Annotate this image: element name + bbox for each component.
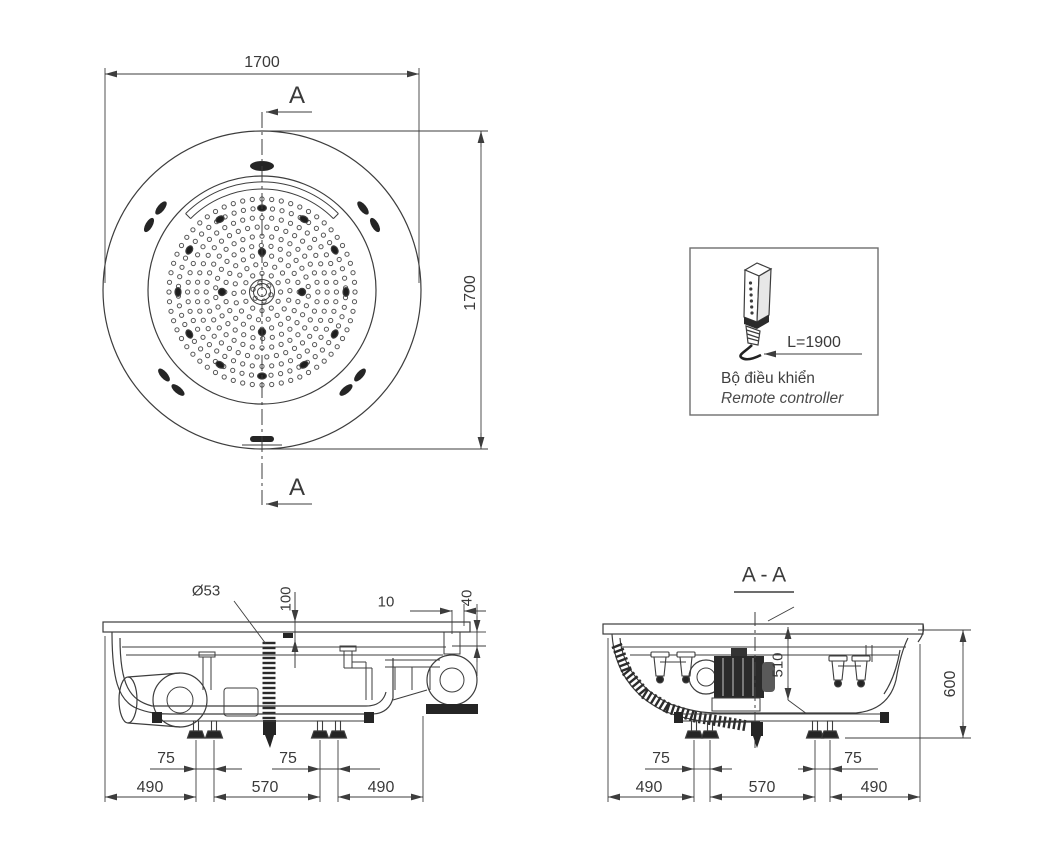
remote-device bbox=[740, 263, 771, 359]
blower bbox=[119, 673, 207, 727]
dim-label-100: 100 bbox=[279, 586, 294, 611]
dim-label-1700-width: 1700 bbox=[244, 55, 280, 71]
dim-label-40: 40 bbox=[460, 590, 475, 607]
drawing-canvas bbox=[0, 0, 1040, 849]
dim-label-490-left-aa: 490 bbox=[636, 780, 663, 796]
section-mark-a-bottom: A bbox=[289, 476, 305, 500]
remote-cable bbox=[740, 345, 761, 359]
dim-label-hose-diameter: Ø53 bbox=[192, 584, 220, 599]
dim-label-600: 600 bbox=[943, 671, 959, 698]
side-view bbox=[103, 592, 486, 802]
remote-label-english: Remote controller bbox=[721, 390, 843, 409]
dim-label-570-sv: 570 bbox=[252, 780, 279, 796]
pump bbox=[393, 632, 478, 714]
motor bbox=[689, 648, 775, 711]
dim-label-1700-height: 1700 bbox=[463, 275, 479, 311]
section-mark-a-top: A bbox=[289, 84, 305, 108]
dim-label-510: 510 bbox=[771, 652, 786, 677]
dim-label-490-right-aa: 490 bbox=[861, 780, 888, 796]
dim-label-490-right-sv: 490 bbox=[368, 780, 395, 796]
dim-label-10: 10 bbox=[378, 595, 395, 610]
dim-label-75-left-sv: 75 bbox=[157, 751, 175, 767]
dim-label-75-right-aa: 75 bbox=[844, 751, 862, 767]
section-title: A - A bbox=[742, 565, 786, 586]
dim-label-75-right-sv: 75 bbox=[279, 751, 297, 767]
suction-hose bbox=[263, 643, 276, 718]
dim-label-570-aa: 570 bbox=[749, 780, 776, 796]
section-view bbox=[603, 592, 971, 802]
top-view bbox=[103, 68, 488, 505]
dim-label-490-left-sv: 490 bbox=[137, 780, 164, 796]
remote-label-vietnamese: Bộ điều khiển bbox=[721, 370, 815, 389]
cable-length-label: L=1900 bbox=[787, 335, 841, 351]
dim-label-75-left-aa: 75 bbox=[652, 751, 670, 767]
technical-drawing-page: 1700 A A 1700 L=1900 Bộ điều khiển Remot… bbox=[0, 0, 1040, 849]
